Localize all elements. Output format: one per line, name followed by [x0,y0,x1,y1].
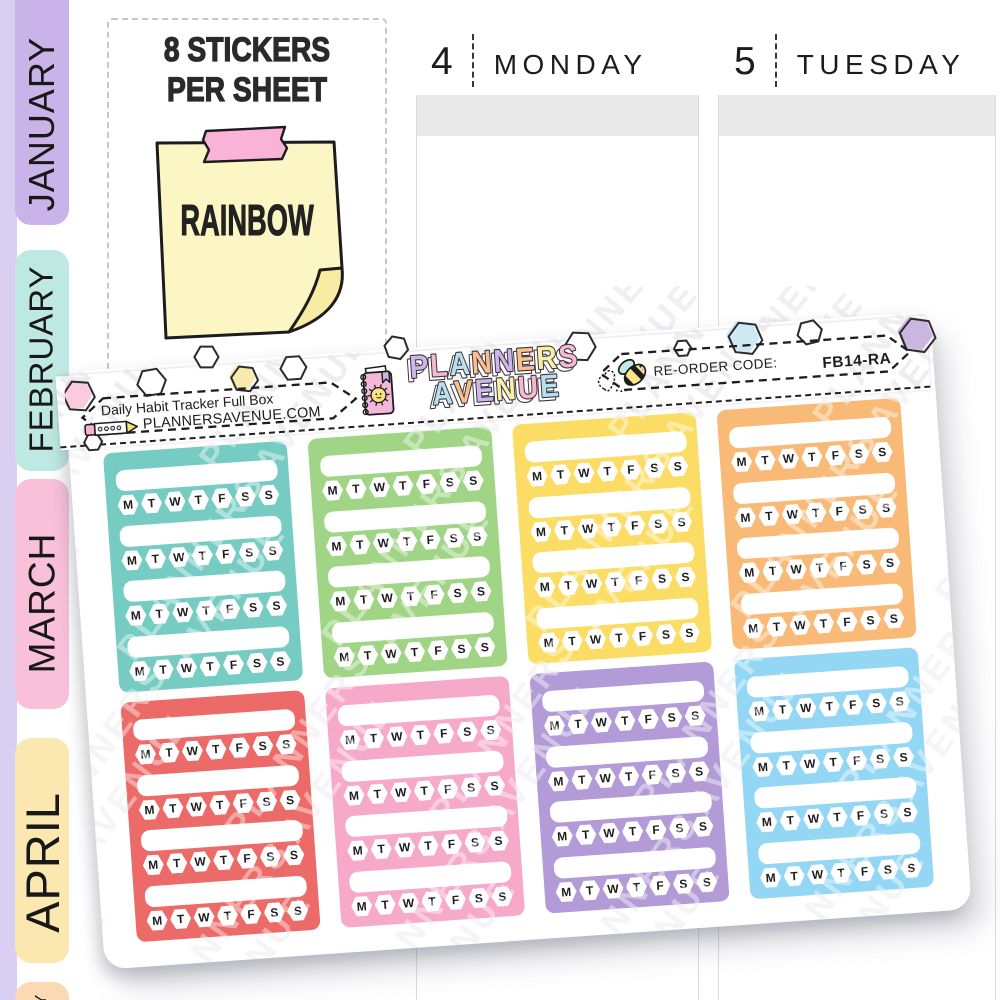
svg-text:RAINBOW: RAINBOW [180,195,314,244]
